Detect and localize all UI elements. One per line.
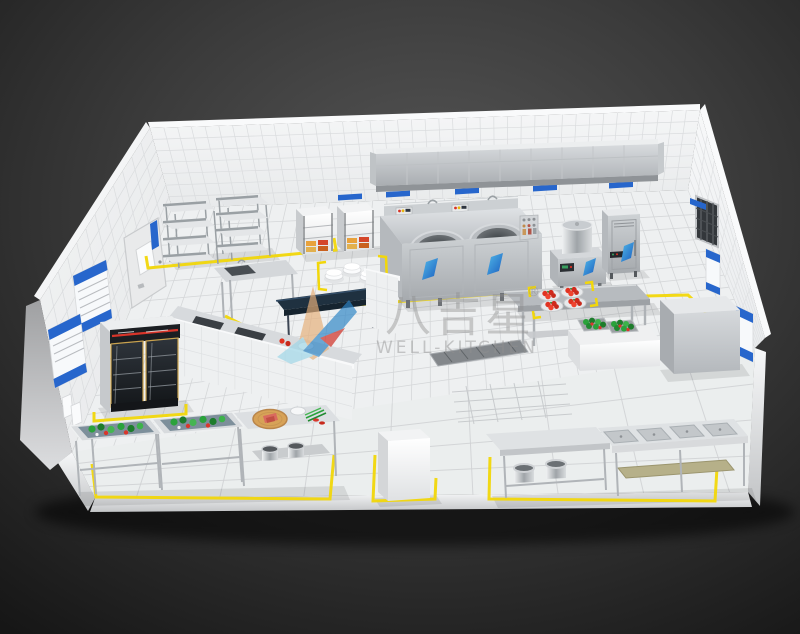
- tomato: [285, 341, 290, 346]
- tomato-plate: [564, 298, 586, 309]
- registered-mark: ®: [527, 285, 540, 300]
- glass-door-left: [111, 341, 143, 407]
- tomato-plate: [561, 287, 583, 298]
- range-control-panel-right: [452, 204, 468, 212]
- tomato-plate: [541, 301, 563, 312]
- kitchen-3d-render: 八吉星 ® WELL-KITCHEN: [0, 0, 800, 634]
- stainless-cabinet-cube: [660, 296, 740, 374]
- watermark-cn-text: 八吉星: [385, 288, 535, 342]
- vegetable-bins-counter: [568, 318, 660, 371]
- plate-stack: [324, 269, 344, 283]
- tray-cart-right: [337, 203, 374, 252]
- white-bowl: [291, 407, 306, 415]
- range-control-panel-left: [396, 207, 412, 215]
- glass-door-refrigerator: [100, 316, 182, 414]
- right-wall-poster-1: [706, 249, 720, 295]
- glass-door-right: [146, 338, 178, 403]
- vegetable-bin: [606, 320, 638, 333]
- upright-white-cabinet: [378, 429, 430, 501]
- vegetable-bin: [578, 318, 610, 331]
- tomato: [279, 338, 284, 343]
- watermark-en-text: WELL-KITCHEN: [376, 338, 538, 358]
- door-handle: [158, 260, 161, 263]
- tomato-plate: [538, 290, 560, 301]
- tray-cart-left: [296, 206, 333, 255]
- scene-svg: 八吉星 ® WELL-KITCHEN: [0, 0, 800, 634]
- steamer-cabinet: [602, 208, 640, 279]
- plate-stack: [342, 263, 362, 277]
- condiment-rack: [520, 215, 538, 240]
- stockpot-control-panel: [560, 263, 574, 272]
